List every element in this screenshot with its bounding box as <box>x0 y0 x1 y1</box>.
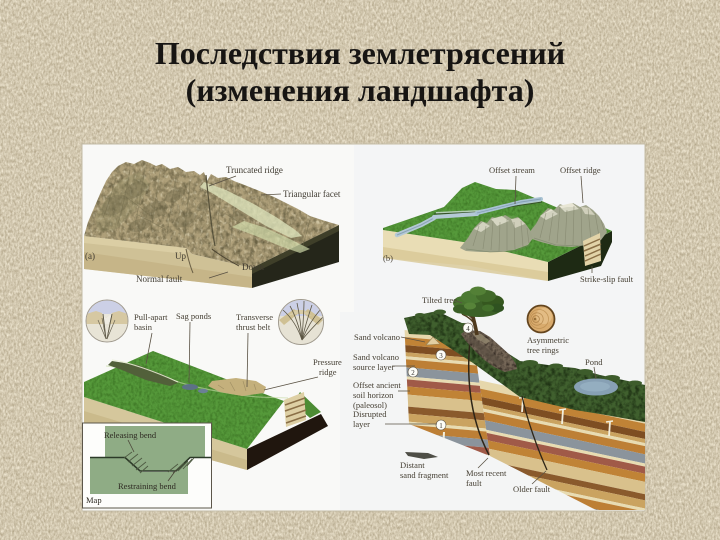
svg-text:source layer: source layer <box>353 362 394 372</box>
svg-text:Offset stream: Offset stream <box>489 165 535 175</box>
svg-text:Tilted tree: Tilted tree <box>422 295 457 305</box>
svg-text:Truncated ridge: Truncated ridge <box>226 165 283 175</box>
svg-text:(b): (b) <box>383 253 393 263</box>
svg-text:(изменения ландшафта): (изменения ландшафта) <box>186 72 535 108</box>
svg-text:basin: basin <box>134 322 153 332</box>
svg-text:Restraining bend: Restraining bend <box>118 481 177 491</box>
svg-text:Down: Down <box>242 262 264 272</box>
svg-text:ridge: ridge <box>319 367 337 377</box>
svg-text:Normal fault: Normal fault <box>136 274 183 284</box>
svg-text:Transverse: Transverse <box>236 312 273 322</box>
svg-text:(a): (a) <box>85 251 95 261</box>
svg-text:Sand volcano: Sand volcano <box>354 332 400 342</box>
svg-text:Releasing bend: Releasing bend <box>104 430 157 440</box>
svg-text:Most recent: Most recent <box>466 468 507 478</box>
svg-text:Disrupted: Disrupted <box>353 409 387 419</box>
svg-text:4: 4 <box>466 325 470 333</box>
svg-text:2: 2 <box>411 369 415 377</box>
svg-text:Asymmetric: Asymmetric <box>527 335 569 345</box>
svg-text:Pond: Pond <box>585 357 603 367</box>
svg-text:thrust belt: thrust belt <box>236 322 271 332</box>
svg-text:Offset ridge: Offset ridge <box>560 165 601 175</box>
svg-text:3: 3 <box>439 352 443 360</box>
svg-text:Map: Map <box>86 495 102 505</box>
svg-text:Up: Up <box>175 251 186 261</box>
svg-text:tree rings: tree rings <box>527 345 559 355</box>
svg-text:fault: fault <box>466 478 482 488</box>
svg-text:Последствия землетрясений: Последствия землетрясений <box>155 35 565 71</box>
svg-text:Older fault: Older fault <box>513 484 551 494</box>
svg-text:Sand volcano: Sand volcano <box>353 352 399 362</box>
svg-text:sand fragment: sand fragment <box>400 470 449 480</box>
svg-text:Sag ponds: Sag ponds <box>176 311 211 321</box>
svg-text:Pull-apart: Pull-apart <box>134 312 168 322</box>
svg-text:Strike-slip fault: Strike-slip fault <box>580 274 634 284</box>
svg-text:layer: layer <box>353 419 370 429</box>
svg-text:Distant: Distant <box>400 460 425 470</box>
svg-text:1: 1 <box>439 422 443 430</box>
svg-text:Triangular facet: Triangular facet <box>283 189 341 199</box>
svg-text:Pressure: Pressure <box>313 357 342 367</box>
svg-text:soil horizon: soil horizon <box>353 390 394 400</box>
svg-text:Offset ancient: Offset ancient <box>353 380 401 390</box>
